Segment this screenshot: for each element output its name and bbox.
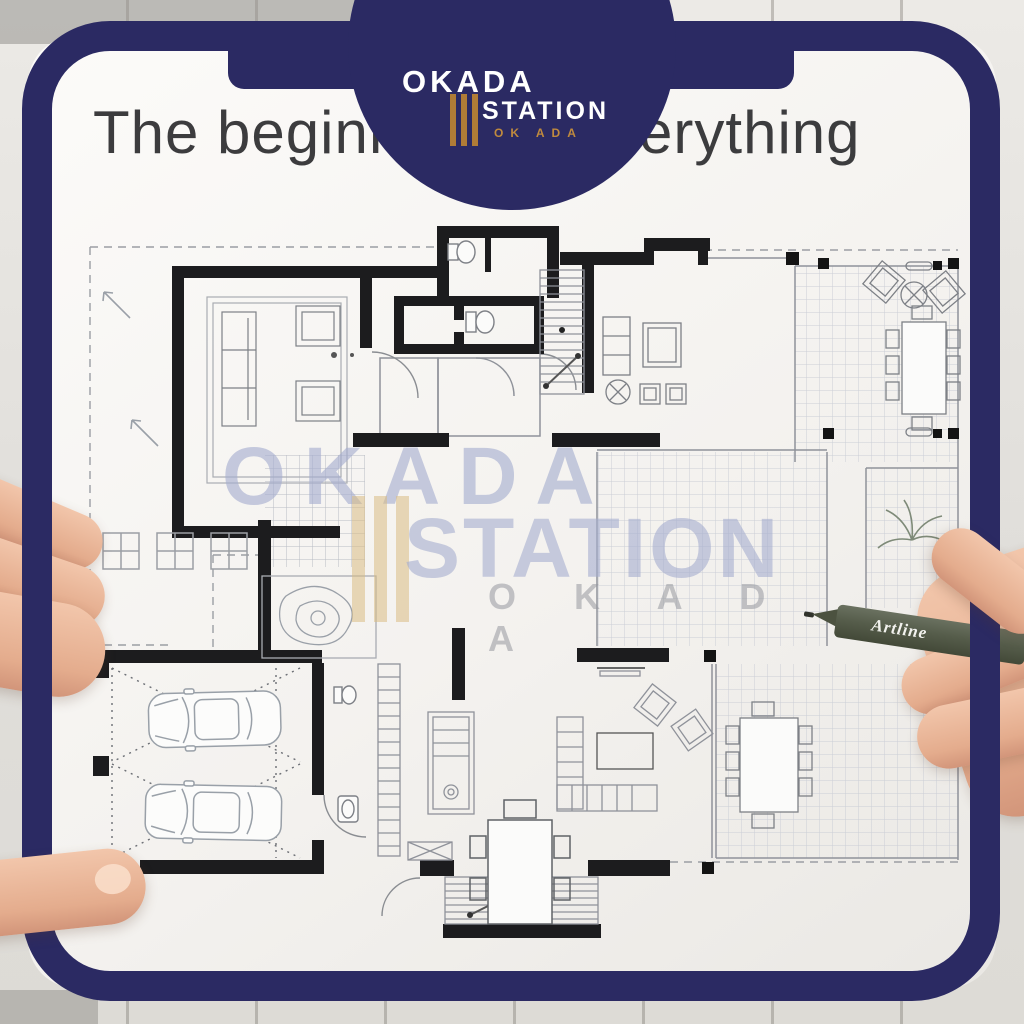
fingernail	[93, 862, 132, 896]
logo-bars-icon	[450, 94, 478, 146]
brand-sub: OK ADA	[494, 126, 583, 140]
brand-logo: OKADA STATION OK ADA	[396, 64, 646, 152]
brand-station: STATION	[482, 97, 609, 126]
